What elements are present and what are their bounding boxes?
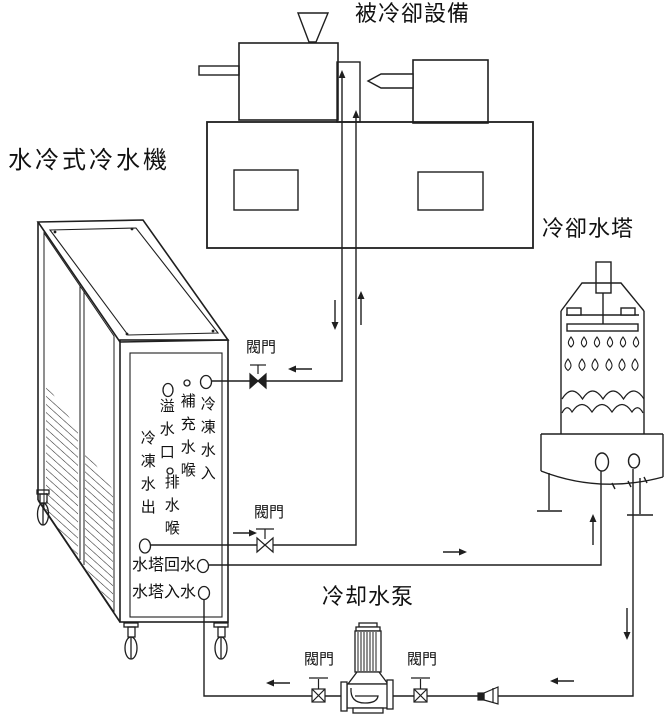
tower-motor <box>596 262 611 293</box>
port-circle-makeup <box>184 380 190 386</box>
flow-arrow-icon <box>443 549 467 556</box>
port-circle-tower-inlet <box>199 587 210 600</box>
machine-base <box>207 122 533 248</box>
flow-arrow-icon <box>288 366 312 373</box>
flow-arrow-icon <box>590 514 597 545</box>
louver-panel <box>46 384 78 557</box>
port-circle-tower-return <box>198 560 209 573</box>
flow-arrows <box>233 291 631 687</box>
pump-drawing <box>341 623 393 713</box>
valve-label-middle: 閥門 <box>254 505 284 521</box>
cooling-tower-drawing <box>537 262 663 515</box>
title-cooling-tower: 冷卻水塔 <box>542 218 634 241</box>
flow-arrow-icon <box>550 678 574 685</box>
pump-flange-left <box>341 682 347 711</box>
title-chiller: 水冷式冷水機 <box>8 148 170 173</box>
pipe-chilled-return <box>212 78 342 381</box>
valve-icon-pump-right <box>411 678 430 702</box>
port-circle-chilled-out <box>140 539 151 553</box>
flow-arrow-icon <box>332 300 339 330</box>
port-label-overflow: 溢水口 <box>158 398 174 467</box>
diagram-line-art <box>0 0 672 721</box>
valve-icon-top <box>250 365 266 388</box>
louver-panel <box>85 449 113 609</box>
base-window-left <box>234 170 298 210</box>
hopper <box>298 13 328 42</box>
flow-arrow-icon <box>353 110 360 118</box>
machine-box-right <box>413 60 488 123</box>
nozzle <box>368 74 413 88</box>
flow-arrow-icon <box>266 680 290 687</box>
cooled-equipment-drawing <box>199 13 533 248</box>
port-circle-chilled-in <box>201 376 212 389</box>
valve-label-top: 閥門 <box>246 340 276 356</box>
valve-icon-middle <box>256 529 274 552</box>
pump-flange-right <box>387 680 393 709</box>
basin-port-right <box>629 454 640 468</box>
port-circle-overflow <box>163 384 173 397</box>
water-waves <box>562 391 644 413</box>
port-label-drain: 排水喉 <box>163 474 179 543</box>
piping-diagram: 水冷式冷水機 被冷卻設備 冷卻水塔 冷却水泵 閥門 閥門 閥門 閥門 冷凍水入 … <box>0 0 672 721</box>
title-cooling-pump: 冷却水泵 <box>322 586 414 609</box>
caster-wheel <box>214 623 228 659</box>
pump-motor <box>355 631 381 672</box>
port-label-makeup: 補充水喉 <box>179 393 195 485</box>
basin-port-left <box>596 453 609 471</box>
port-label-tower-inlet: 水塔入水 <box>132 584 196 601</box>
water-droplets <box>565 337 639 371</box>
valve-icon-pump-left <box>309 678 328 702</box>
caster-wheel <box>124 623 138 659</box>
port-label-tower-return: 水塔回水 <box>132 557 196 574</box>
port-label-chilled-in: 冷凍水入 <box>199 396 215 488</box>
valve-label-pump-right: 閥門 <box>407 652 437 668</box>
flow-arrow-icon <box>339 70 346 78</box>
port-label-chilled-out: 冷凍水出 <box>139 430 155 522</box>
flow-arrow-icon <box>358 291 365 325</box>
valve-label-pump-left: 閥門 <box>304 652 334 668</box>
flow-arrow-icon <box>624 608 631 640</box>
spray-bar <box>567 324 638 331</box>
machine-box-left <box>239 43 338 120</box>
cabinet-top-face <box>38 220 228 342</box>
flow-arrow-icon <box>233 530 257 537</box>
cabinet-top-inner <box>50 228 218 335</box>
title-cooled-equipment: 被冷卻設備 <box>355 3 470 26</box>
base-window-right <box>418 172 483 210</box>
check-valve-icon <box>478 687 498 704</box>
barrel <box>199 66 239 75</box>
